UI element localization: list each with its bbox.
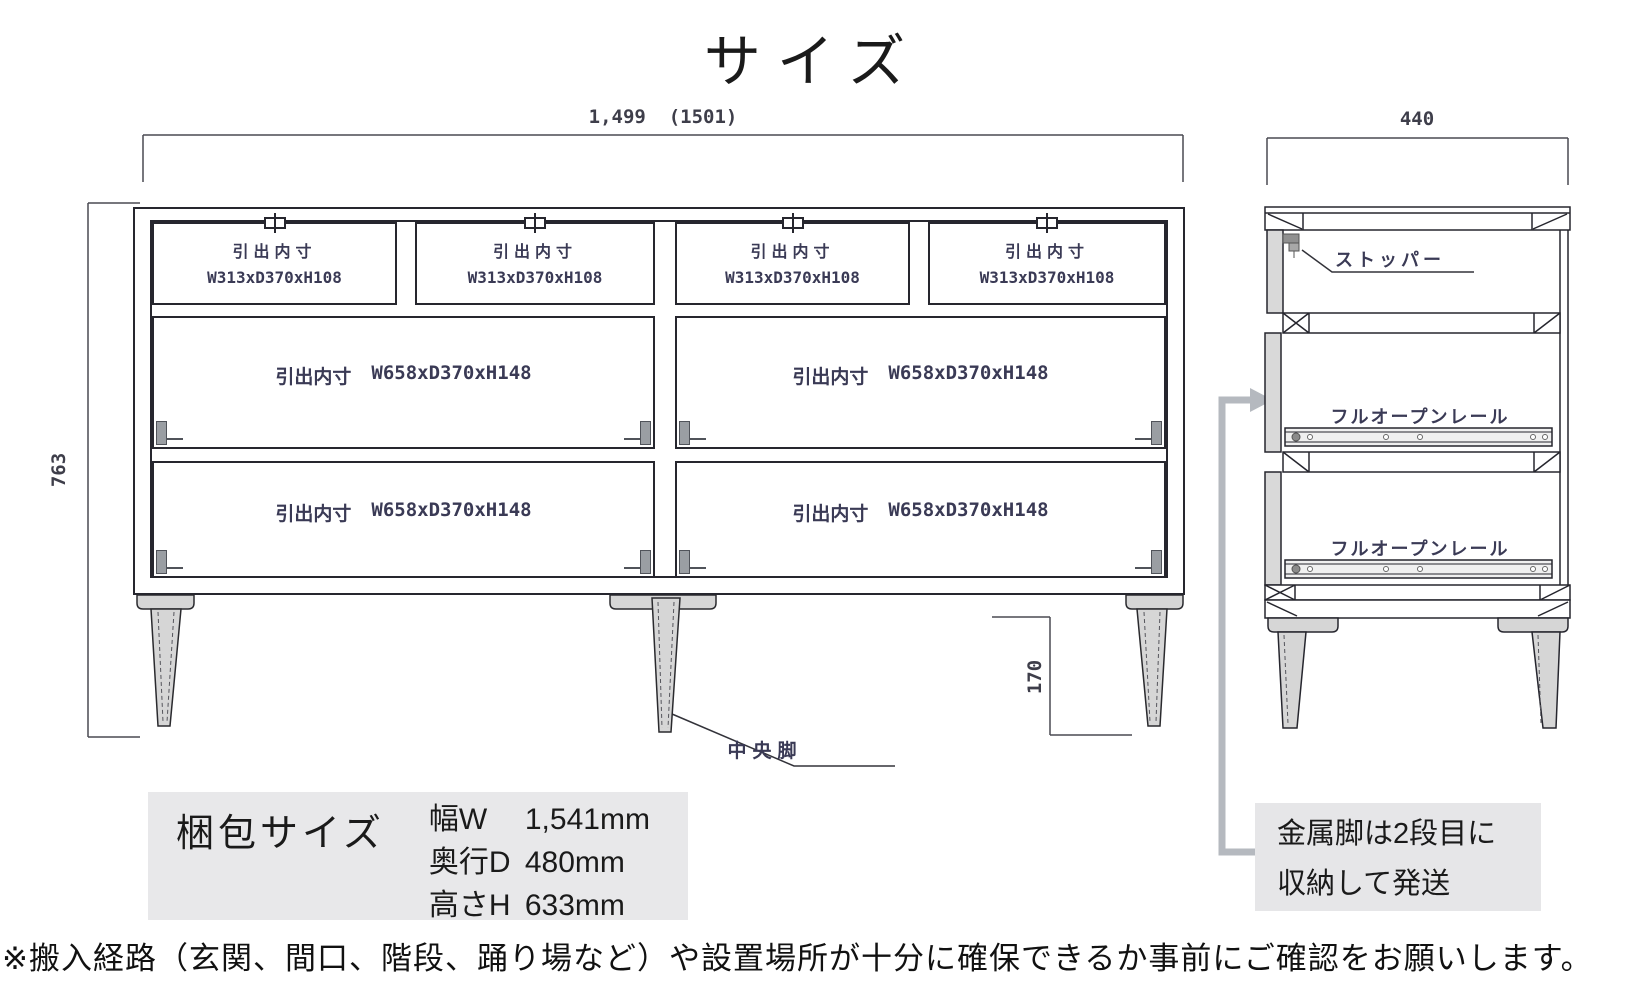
packing-row-label: 幅W — [429, 798, 525, 841]
drawer-label-text: 引出内寸 — [275, 499, 351, 526]
side-right-leg-plate — [1498, 618, 1568, 632]
drawer-latch-icon — [1036, 217, 1058, 229]
full-open-rail-label-1: フルオープンレール — [1300, 403, 1540, 429]
small-drawer-2: 引出内寸 W313xD370xH108 — [415, 222, 655, 305]
small-drawer-3: 引出内寸 W313xD370xH108 — [675, 222, 910, 305]
drawer-rail-bracket-icon — [156, 550, 167, 574]
leg-height-dimension-line — [992, 617, 1132, 735]
left-leg-plate — [137, 595, 194, 609]
drawer-size-text: W658xD370xH148 — [371, 362, 531, 389]
drawer-size-text: W658xD370xH148 — [888, 362, 1048, 389]
drawer-rail-bracket-icon — [679, 550, 690, 574]
stopper-icon — [1283, 234, 1299, 258]
leg-height-dimension-label: 170 — [1024, 637, 1048, 717]
furniture-size-diagram: サイズ 1,499 (1501) 763 440 170 引出内寸 W313xD… — [0, 0, 1625, 1007]
drawer-size-text: W658xD370xH148 — [371, 499, 531, 526]
drawer-label: 引出内寸 — [1005, 238, 1089, 266]
callout-arrow — [1222, 388, 1273, 852]
packing-row-label: 奥行D — [429, 841, 525, 884]
side-left-leg-plate — [1268, 618, 1338, 632]
large-drawer-4: 引出内寸 W658xD370xH148 — [675, 461, 1166, 578]
center-leg-label: 中央脚 — [700, 736, 830, 763]
drawer-label: 引出内寸 — [232, 238, 316, 266]
drawer-label: 引出内寸 — [750, 238, 834, 266]
drawer-label-text: 引出内寸 — [792, 499, 868, 526]
right-leg — [1137, 609, 1167, 726]
footer-note: ※搬入経路（玄関、間口、階段、踊り場など）や設置場所が十分に確保できるか事前にご… — [2, 933, 1624, 978]
drawer-label: 引出内寸 W658xD370xH148 — [275, 499, 531, 526]
side-legs — [1268, 618, 1568, 728]
center-leg — [652, 598, 680, 732]
packing-row-label: 高さH — [429, 884, 525, 927]
packing-row-value: 633mm — [525, 884, 625, 927]
drawer-size-text: W658xD370xH148 — [888, 499, 1048, 526]
side-view-structure — [1265, 207, 1570, 728]
drawer-label: 引出内寸 W658xD370xH148 — [792, 499, 1048, 526]
page-title: サイズ — [0, 16, 1625, 98]
drawer-rail-bracket-icon — [156, 421, 167, 445]
side-right-leg — [1532, 632, 1560, 728]
width-dimension-label: 1,499 (1501) — [463, 106, 863, 128]
packing-size-title: 梱包サイズ — [148, 792, 385, 857]
right-leg-plate — [1126, 595, 1183, 609]
depth-dimension-label: 440 — [1317, 108, 1517, 130]
shipping-note-line1: 金属脚は2段目に — [1277, 809, 1541, 859]
packing-size-rows: 幅W 1,541mm 奥行D 480mm 高さH 633mm — [429, 798, 650, 927]
packing-row-depth: 奥行D 480mm — [429, 841, 650, 884]
width-dimension-line — [143, 135, 1183, 182]
drawer-latch-icon — [524, 217, 546, 229]
packing-row-value: 1,541mm — [525, 798, 650, 841]
drawer-rail-bracket-icon — [679, 421, 690, 445]
large-drawer-2: 引出内寸 W658xD370xH148 — [675, 316, 1166, 449]
packing-row-width: 幅W 1,541mm — [429, 798, 650, 841]
drawer-size: W313xD370xH108 — [468, 266, 603, 290]
packing-size-box: 梱包サイズ 幅W 1,541mm 奥行D 480mm 高さH 633mm — [148, 792, 688, 920]
left-leg — [151, 609, 181, 726]
drawer-size: W313xD370xH108 — [207, 266, 342, 290]
large-drawer-3: 引出内寸 W658xD370xH148 — [152, 461, 655, 578]
shipping-note-line2: 収納して発送 — [1277, 859, 1541, 909]
drawer-size: W313xD370xH108 — [725, 266, 860, 290]
full-open-rail-graphic-1 — [1285, 428, 1552, 446]
packing-row-value: 480mm — [525, 841, 625, 884]
height-dimension-label: 763 — [48, 430, 72, 510]
drawer-latch-icon — [782, 217, 804, 229]
drawer-label: 引出内寸 W658xD370xH148 — [792, 362, 1048, 389]
full-open-rail-label-2: フルオープンレール — [1300, 535, 1540, 561]
drawer-label: 引出内寸 — [493, 238, 577, 266]
packing-row-height: 高さH 633mm — [429, 884, 650, 927]
drawer-size: W313xD370xH108 — [980, 266, 1115, 290]
drawer-latch-icon — [264, 217, 286, 229]
small-drawer-4: 引出内寸 W313xD370xH108 — [928, 222, 1166, 305]
drawer-rail-bracket-icon — [640, 550, 651, 574]
side-left-leg — [1278, 632, 1306, 728]
side-top-panel — [1265, 207, 1570, 230]
drawer-rail-bracket-icon — [1151, 550, 1162, 574]
drawer-label: 引出内寸 W658xD370xH148 — [275, 362, 531, 389]
stopper-label: ストッパー — [1335, 246, 1445, 272]
shipping-note-box: 金属脚は2段目に 収納して発送 — [1255, 803, 1541, 911]
drawer-label-text: 引出内寸 — [792, 362, 868, 389]
small-drawer-1: 引出内寸 W313xD370xH108 — [152, 222, 397, 305]
full-open-rail-graphic-2 — [1285, 560, 1552, 578]
drawer-rail-bracket-icon — [640, 421, 651, 445]
drawer-rail-bracket-icon — [1151, 421, 1162, 445]
depth-dimension-line — [1267, 138, 1568, 185]
large-drawer-1: 引出内寸 W658xD370xH148 — [152, 316, 655, 449]
drawer-label-text: 引出内寸 — [275, 362, 351, 389]
